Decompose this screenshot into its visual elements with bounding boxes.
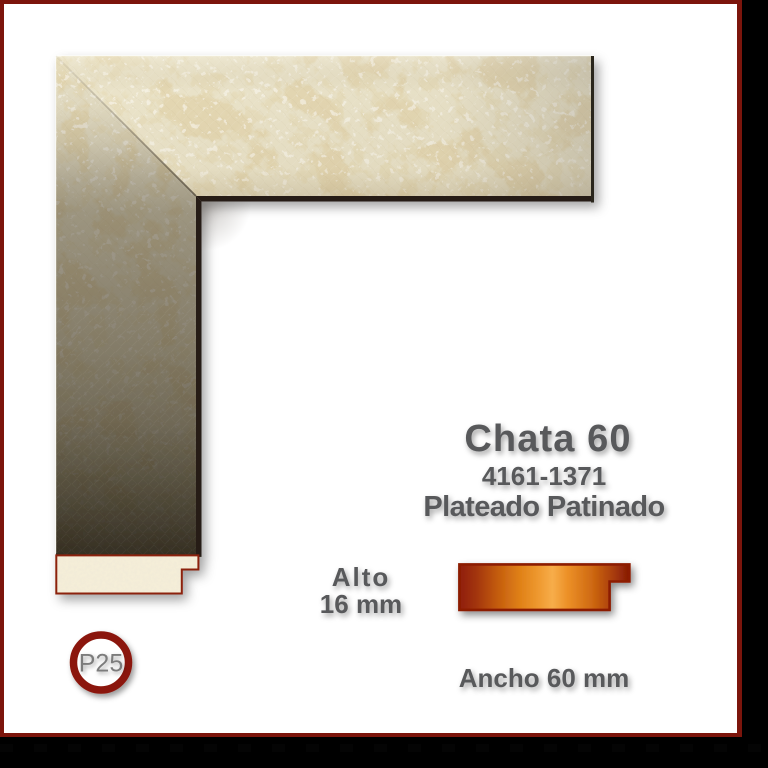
svg-text:P25: P25 [79, 650, 123, 678]
